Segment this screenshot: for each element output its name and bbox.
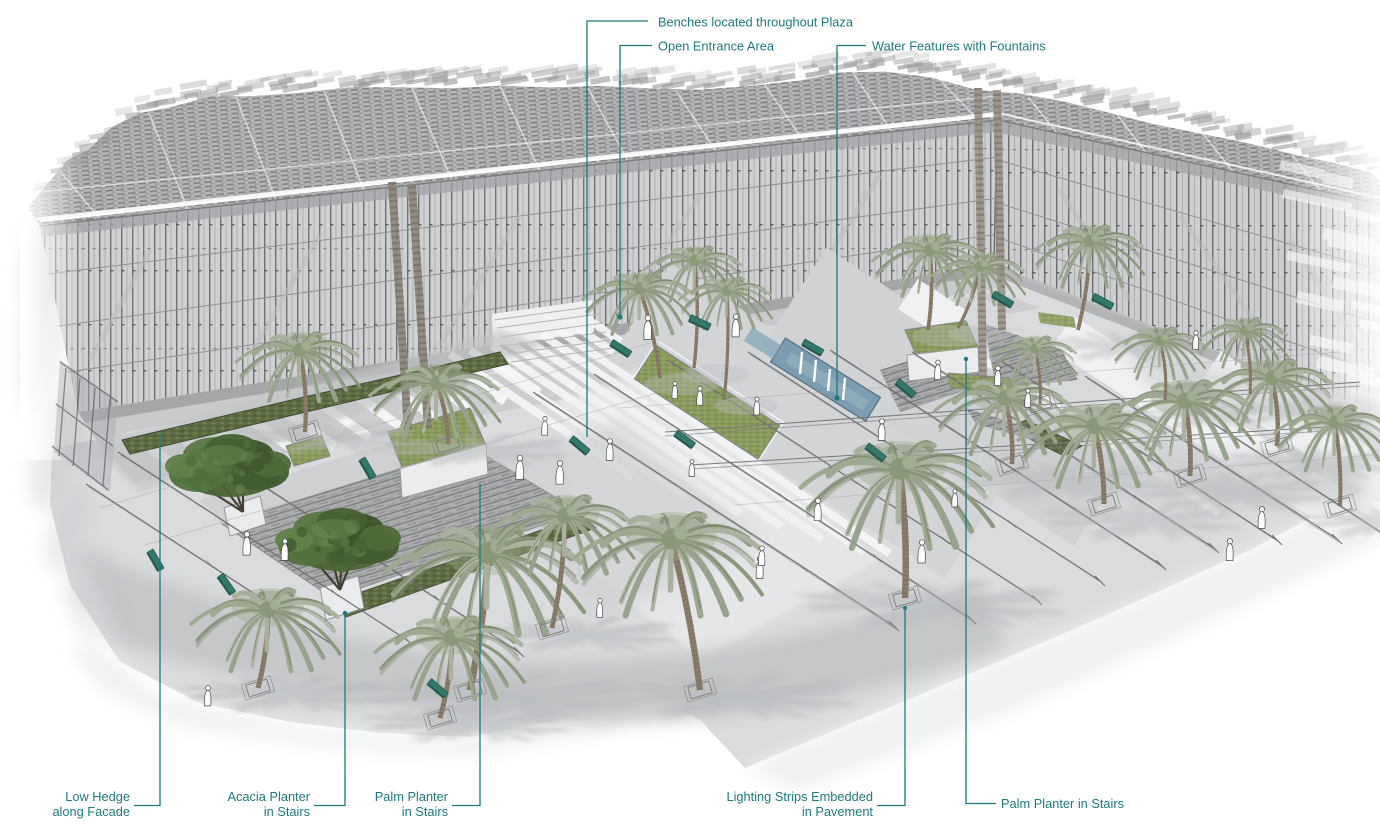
svg-text:Low Hedge: Low Hedge — [65, 789, 130, 804]
svg-text:in Stairs: in Stairs — [264, 804, 310, 819]
svg-text:Lighting Strips Embedded: Lighting Strips Embedded — [726, 789, 873, 804]
svg-text:Open Entrance Area: Open Entrance Area — [658, 39, 775, 54]
svg-text:Water Features with Fountains: Water Features with Fountains — [872, 39, 1046, 54]
svg-text:along Facade: along Facade — [52, 804, 130, 819]
svg-text:Benches located throughout Pla: Benches located throughout Plaza — [658, 15, 854, 30]
svg-text:Acacia Planter: Acacia Planter — [227, 789, 310, 804]
svg-text:Palm Planter in Stairs: Palm Planter in Stairs — [1001, 796, 1124, 811]
svg-text:Palm Planter: Palm Planter — [375, 789, 449, 804]
svg-text:in Pavement: in Pavement — [802, 804, 874, 819]
svg-text:in Stairs: in Stairs — [402, 804, 448, 819]
